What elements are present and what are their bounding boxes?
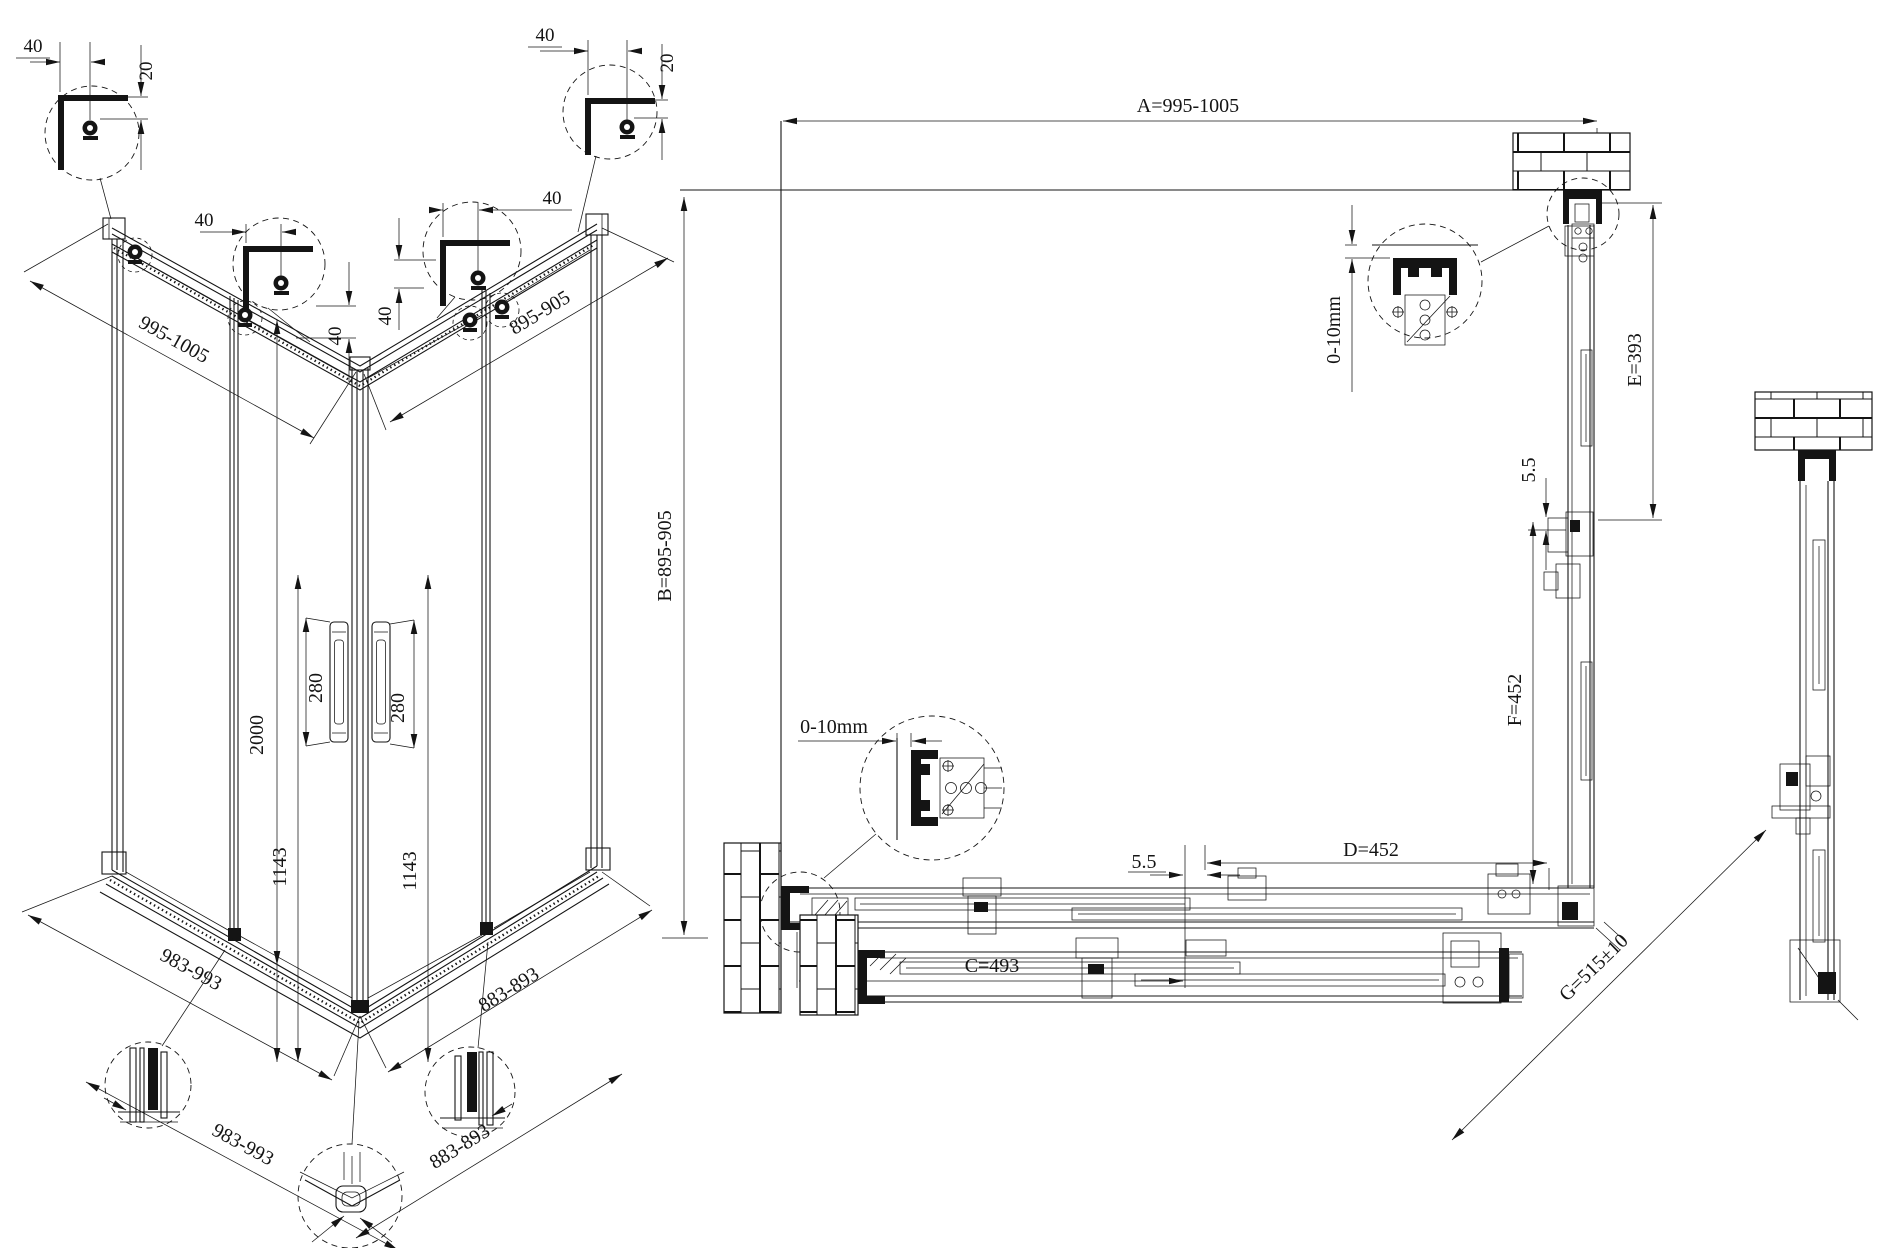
- technical-drawing-page: 40 20 40 40: [0, 0, 1883, 1248]
- right-door-assembly: [1544, 225, 1626, 950]
- wall-adjust-left-label: 0-10mm: [800, 716, 868, 738]
- iso-base-width: 983-993: [156, 944, 225, 995]
- gap-right: 5.5: [1518, 458, 1566, 571]
- door-handle-right: [372, 622, 390, 742]
- wall-adjust-top-label: 0-10mm: [1323, 296, 1345, 364]
- dim-B-label: B=895-905: [654, 510, 676, 601]
- dim-F: F=452: [1504, 522, 1533, 884]
- dim-E: E=393: [1598, 203, 1662, 520]
- gap-bottom: 5.5: [1128, 845, 1240, 875]
- detail-circle-wall-top: 0-10mm: [1323, 205, 1482, 392]
- door-handle-left: [330, 622, 348, 742]
- dim-40-label: 40: [195, 210, 214, 231]
- iso-glass-left: 1143: [269, 847, 291, 886]
- gap-right-label: 5.5: [1518, 458, 1540, 483]
- dim-D-label: D=452: [1343, 839, 1399, 861]
- dim-40-side-label: 40: [375, 307, 396, 326]
- detail-circle-bottom-right: [425, 942, 515, 1137]
- dim-40-label: 40: [543, 188, 562, 209]
- dim-B: B=895-905: [654, 197, 708, 938]
- detail-circle-bottom-center: [298, 1022, 404, 1248]
- isometric-view: 40 20 40 40: [16, 25, 678, 1248]
- bottom-door-assembly: [788, 864, 1594, 934]
- dim-40-side-label: 40: [325, 327, 346, 346]
- detail-circle-wall-left: 0-10mm: [798, 716, 1004, 860]
- dim-A-label: A=995-1005: [1137, 95, 1239, 117]
- gap-bottom-label: 5.5: [1132, 851, 1157, 873]
- wall-top-right: [1481, 133, 1630, 262]
- iso-top-width: 995-1005: [135, 312, 213, 368]
- iso-glass-right: 1143: [399, 851, 421, 890]
- dim-D: D=452: [1207, 839, 1549, 890]
- shower-enclosure-drawing: 40 20 40 40: [0, 0, 1883, 1248]
- plan-view: A=995-1005 B=895-905: [654, 95, 1872, 1140]
- iso-top-depth: 895-905: [506, 286, 574, 339]
- open-view-right-track: [1755, 392, 1872, 1020]
- dim-E-label: E=393: [1624, 333, 1646, 387]
- dim-40-label: 40: [536, 25, 555, 46]
- detail-circle-corner-1: 40 20: [16, 36, 157, 219]
- dim-G-label: G=515±10: [1555, 930, 1633, 1006]
- open-view-bottom-track: [800, 915, 1523, 1015]
- dim-20-label: 20: [136, 62, 157, 81]
- dim-A: A=995-1005: [783, 95, 1597, 196]
- dim-20-label: 20: [657, 54, 678, 73]
- dim-40-label: 40: [24, 36, 43, 57]
- iso-handle-left: 280: [305, 673, 327, 703]
- dim-F-label: F=452: [1504, 674, 1526, 726]
- iso-height: 2000: [246, 715, 268, 755]
- iso-handle-right: 280: [387, 693, 409, 723]
- iso-base-width-outer: 983-993: [208, 1119, 277, 1170]
